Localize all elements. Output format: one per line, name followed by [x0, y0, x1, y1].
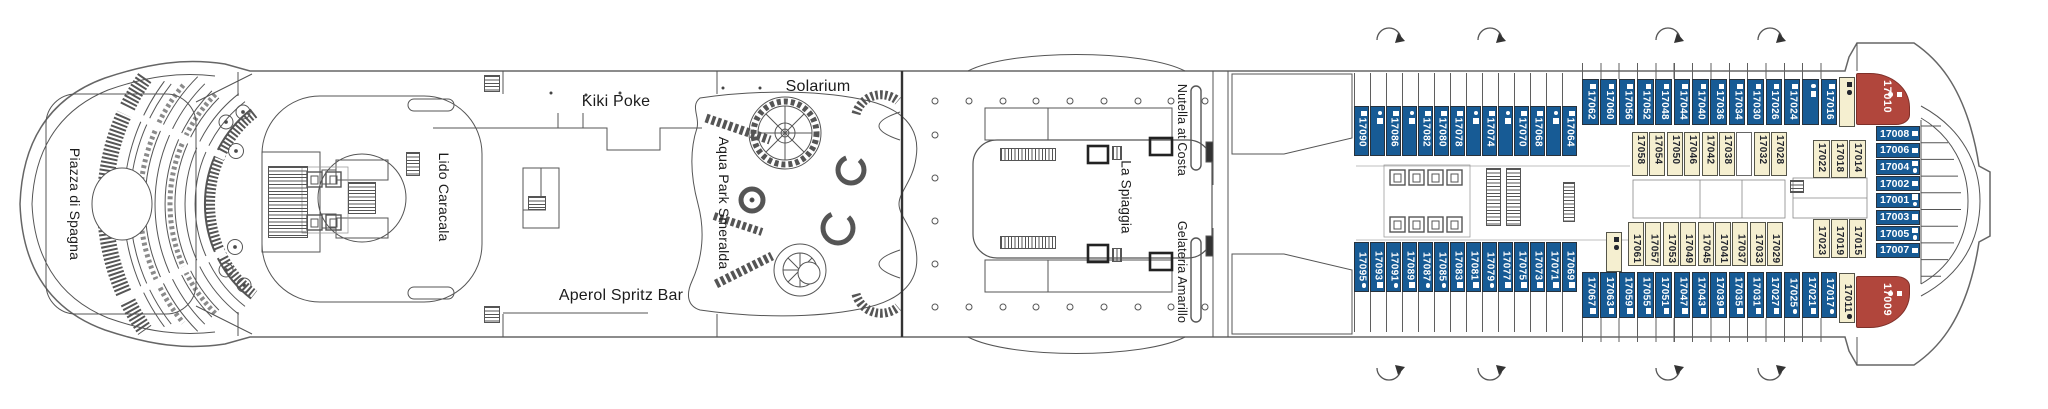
cabin-number: 17005 [1880, 228, 1909, 240]
cabin-number: 17017 [1824, 278, 1835, 307]
stairs-hatch [1112, 146, 1122, 160]
cabin-17072[interactable]: 17072 [1498, 106, 1513, 156]
occupancy-square-icon [1646, 308, 1652, 314]
venue-label-aperol: Aperol Spritz Bar [559, 287, 683, 305]
cabin-17049[interactable]: 17049 [1680, 222, 1696, 266]
deck-column-dot [965, 98, 972, 105]
cabin-number: 17052 [1641, 91, 1652, 120]
occupancy-square-icon [1377, 118, 1383, 124]
deck-column-dot [1100, 98, 1107, 105]
stairs-hatch [1000, 236, 1056, 249]
occupancy-dot-icon [1394, 283, 1399, 288]
balcony-dividers [1582, 318, 1838, 342]
cabin-17062[interactable]: 17062 [1582, 79, 1599, 125]
cabin-number: 17016 [1824, 91, 1835, 120]
cabin-number: 17084 [1402, 109, 1403, 138]
cabin-number: 17045 [1701, 234, 1712, 263]
occupancy-square-icon [1627, 308, 1633, 314]
cabin-number: 17070 [1517, 118, 1528, 147]
occupancy-dot-icon [1888, 291, 1893, 296]
cabin-number: 17073 [1533, 251, 1544, 280]
cabin-number: 17076 [1466, 109, 1467, 138]
occupancy-dot-icon [1426, 283, 1431, 288]
cabin-17074[interactable]: 17074 [1482, 106, 1497, 156]
occupancy-square-icon [1897, 92, 1903, 98]
cabin-17010[interactable]: 17010 [1856, 73, 1910, 125]
cabin-number: 17072 [1498, 109, 1499, 138]
kiki-poke-counter [433, 113, 702, 150]
stairs-hatch [268, 166, 308, 238]
cabin-17030[interactable]: 17030 [1747, 79, 1764, 125]
cabin-17035[interactable]: 17035 [1729, 272, 1746, 318]
stairs-hatch [484, 75, 500, 92]
cabin-number: 17030 [1751, 91, 1762, 120]
cabin-17066[interactable]: 17066 [1546, 106, 1561, 156]
stairs-hatch [484, 306, 500, 323]
occupancy-square-icon [1505, 118, 1511, 124]
cabin-number: 17049 [1683, 234, 1694, 263]
cabin-17056[interactable]: 17056 [1619, 79, 1636, 125]
deck-column-dot [1168, 98, 1175, 105]
mid-bulge-top [968, 55, 1185, 72]
cabin-17032[interactable]: 17032 [1754, 132, 1770, 176]
cabin-17016[interactable]: 17016 [1821, 79, 1838, 125]
deck-column-dot [999, 304, 1006, 311]
occupancy-square-icon [1737, 84, 1743, 90]
cabin-17041[interactable]: 17041 [1715, 222, 1731, 266]
occupancy-square-icon [1737, 308, 1743, 314]
cabin-number: 17021 [1806, 277, 1817, 306]
cabin-number: 17001 [1880, 194, 1909, 206]
cabin-number: 17019 [1834, 226, 1845, 255]
occupancy-dot-icon [1442, 283, 1447, 288]
cabin-number: 17023 [1816, 226, 1827, 255]
occupancy-square-icon [1537, 111, 1543, 117]
cabin-17015[interactable]: 17015 [1849, 219, 1866, 258]
cabin-number: 17088 [1370, 109, 1371, 138]
occupancy-square-icon [1756, 84, 1762, 90]
cabin-number: 17038 [1722, 135, 1733, 164]
cabin-number: 17075 [1517, 251, 1528, 280]
cabin-number: 17046 [1687, 135, 1698, 164]
cabin-number: 17015 [1852, 226, 1863, 255]
cabin-number: 17026 [1769, 91, 1780, 120]
occupancy-square-icon [1521, 111, 1527, 117]
venue-label-lido: Lido Caracala [436, 153, 452, 242]
venue-label-gelateria: Gelateria Amarillo [1175, 221, 1189, 323]
occupancy-dot-icon [1490, 283, 1495, 288]
cabin-number: 17089 [1405, 251, 1416, 280]
occupancy-square-icon [1590, 84, 1596, 90]
cabin-number: 17087 [1421, 252, 1432, 281]
occupancy-dot-icon [1913, 202, 1918, 207]
deck-column-dot [932, 98, 939, 105]
deck-column-dot [1202, 304, 1209, 311]
cabin-17034[interactable]: 17034 [1729, 79, 1746, 125]
occupancy-dot-icon [1830, 309, 1835, 314]
occupancy-square-icon [1441, 111, 1447, 117]
cabin-17093[interactable]: 17093 [1370, 242, 1385, 292]
stairs-hatch [1000, 148, 1056, 161]
deck-column-dot [1202, 98, 1209, 105]
cabin-number: 17079 [1485, 252, 1496, 281]
cabin-number: 17042 [1705, 135, 1716, 164]
cabin-17014[interactable]: 17014 [1849, 140, 1866, 178]
cabin-number: 17074 [1485, 118, 1496, 147]
occupancy-dot-icon [1378, 111, 1383, 116]
cabin-number: 17056 [1622, 91, 1633, 120]
deck-marker-dot [722, 87, 725, 90]
cabin-17029[interactable]: 17029 [1767, 222, 1783, 266]
cabin-17081[interactable]: 17081 [1466, 242, 1481, 292]
cabin-17025[interactable]: 17025 [1784, 272, 1801, 318]
cabin-17007[interactable]: 17007 [1876, 243, 1920, 258]
occupancy-square-icon [1489, 111, 1495, 117]
cabin-17076[interactable]: 17076 [1466, 106, 1481, 156]
stairs-hatch [1486, 168, 1501, 226]
cabin-number: 17041 [1718, 234, 1729, 263]
occupancy-square-icon [1792, 84, 1798, 90]
cabin-number: 17028 [1774, 135, 1785, 164]
cabin-17039[interactable]: 17039 [1710, 272, 1727, 318]
cabin-number: 17068 [1533, 118, 1544, 147]
cabin-number: 17029 [1770, 234, 1781, 263]
cabin-number: 17011 [1842, 284, 1853, 313]
deck-column-dot [999, 98, 1006, 105]
deck-column-dot [1168, 304, 1175, 311]
cabin-number: 17064 [1565, 118, 1576, 147]
cabin-number: 17091 [1389, 252, 1400, 281]
occupancy-square-icon [1409, 118, 1415, 124]
cabin-17083[interactable]: 17083 [1450, 242, 1465, 292]
cabin-17084[interactable]: 17084 [1402, 106, 1417, 156]
occupancy-dot-icon [1888, 92, 1893, 97]
cabin-number: 17093 [1373, 251, 1384, 280]
occupancy-square-icon [1569, 282, 1575, 288]
cabin-17079[interactable]: 17079 [1482, 242, 1497, 292]
occupancy-square-icon [1912, 214, 1918, 220]
deck-column-dot [965, 304, 972, 311]
cabin-number: 17037 [1735, 234, 1746, 263]
cabin-17053[interactable]: 17053 [1663, 222, 1679, 266]
venue-label-aquapark: Aqua Park Smeralda [716, 137, 732, 270]
cabin-number: 17006 [1880, 144, 1909, 156]
cabin-number: 17036 [1714, 91, 1725, 120]
deck-marker-dot [619, 92, 622, 95]
cabin-number: 17067 [1586, 277, 1597, 306]
occupancy-square-icon [1457, 111, 1463, 117]
venue-label-spiaggia: La Spiaggia [1119, 160, 1134, 234]
cabin-17021[interactable]: 17021 [1802, 272, 1819, 318]
cabin-17026[interactable]: 17026 [1766, 79, 1783, 125]
cabin-number: 17008 [1880, 128, 1909, 140]
forward-elevator-bank [302, 167, 348, 233]
cabin-number: 17060 [1604, 91, 1615, 120]
occupancy-square-icon [1664, 308, 1670, 314]
occupancy-square-icon [1847, 82, 1853, 88]
cabin-17011[interactable]: 17011 [1839, 273, 1855, 323]
stairs-hatch [1563, 182, 1575, 222]
occupancy-square-icon [1774, 84, 1780, 90]
stairs-hatch [348, 182, 376, 214]
cabin-17031[interactable]: 17031 [1747, 272, 1764, 318]
occupancy-dot-icon [1614, 245, 1619, 250]
cabin-17012[interactable]: 17012 [1839, 77, 1855, 127]
cabin-17082[interactable]: 17082 [1418, 106, 1433, 156]
cabin-17044[interactable]: 17044 [1674, 79, 1691, 125]
cabin-number: 17051 [1659, 277, 1670, 306]
cabin-number: 17043 [1696, 277, 1707, 306]
occupancy-square-icon [1393, 111, 1399, 117]
occupancy-square-icon [1912, 161, 1918, 167]
occupancy-square-icon [1701, 84, 1707, 90]
cabin-17020[interactable]: 17020 [1802, 79, 1819, 125]
cabin-17018[interactable]: 17018 [1831, 140, 1848, 178]
cabin-17008[interactable]: 17008 [1876, 126, 1920, 141]
cabin-number: 17061 [1631, 234, 1642, 263]
cabin-17080[interactable]: 17080 [1434, 106, 1449, 156]
service-room-bottom [1232, 254, 1352, 334]
cabin-17028[interactable]: 17028 [1771, 132, 1787, 176]
cabin-17046[interactable]: 17046 [1684, 132, 1700, 176]
cabin-17001[interactable]: 17001 [1876, 193, 1920, 208]
cabin-17019[interactable]: 17019 [1831, 219, 1848, 258]
occupancy-square-icon [1811, 91, 1817, 97]
occupancy-square-icon [1614, 237, 1620, 243]
cabin-17088[interactable]: 17088 [1370, 106, 1385, 156]
cabin-17047[interactable]: 17047 [1674, 272, 1691, 318]
cabin-17070[interactable]: 17070 [1514, 106, 1529, 156]
cabin-number: 17080 [1437, 118, 1448, 147]
cabin-number: 17086 [1389, 118, 1400, 147]
cabin-17042[interactable]: 17042 [1702, 132, 1718, 176]
cabin-number: 17044 [1677, 91, 1688, 120]
cabin-17038[interactable]: 17038 [1719, 132, 1735, 176]
cabin-17063[interactable]: 17063 [1600, 272, 1617, 318]
occupancy-square-icon [1627, 84, 1633, 90]
cabin-17005[interactable]: 17005 [1876, 226, 1920, 241]
occupancy-square-icon [1609, 84, 1615, 90]
cabin-17023[interactable]: 17023 [1813, 219, 1830, 258]
occupancy-square-icon [1811, 308, 1817, 314]
cabin-17058[interactable]: 17058 [1632, 132, 1648, 176]
cabin-17087[interactable]: 17087 [1418, 242, 1433, 292]
stairs-hatch [406, 152, 420, 176]
occupancy-square-icon [1425, 111, 1431, 117]
occupancy-square-icon [1774, 308, 1780, 314]
cabin-number: 17069 [1565, 251, 1576, 280]
cabin-number: 17053 [1666, 234, 1677, 263]
cabin-number: 17078 [1453, 118, 1464, 147]
cabin-17078[interactable]: 17078 [1450, 106, 1465, 156]
venue-label-nutella: Nutella at Costa [1175, 84, 1189, 176]
cabin-number: 17039 [1714, 277, 1725, 306]
occupancy-square-icon [1590, 308, 1596, 314]
occupancy-square-icon [1897, 291, 1903, 297]
occupancy-square-icon [1912, 181, 1918, 187]
gelateria-counter [1191, 238, 1201, 322]
cabin-number: 17063 [1604, 277, 1615, 306]
deck-column-dot [1134, 98, 1141, 105]
venue-label-kiki: Kiki Poke [582, 93, 651, 111]
stairs-hatch [1790, 180, 1804, 193]
occupancy-square-icon [1682, 84, 1688, 90]
cabin-17069[interactable]: 17069 [1562, 242, 1577, 292]
cabin-17095[interactable]: 17095 [1354, 242, 1369, 292]
cabin-17006[interactable]: 17006 [1876, 143, 1920, 158]
cabin-number: 17047 [1677, 277, 1688, 306]
occupancy-square-icon [1719, 308, 1725, 314]
cabin-number: 17022 [1816, 143, 1827, 172]
cabin-17086[interactable]: 17086 [1386, 106, 1401, 156]
occupancy-square-icon [1609, 308, 1615, 314]
cabin-17089[interactable]: 17089 [1402, 242, 1417, 292]
amphitheatre-seating [92, 77, 254, 332]
deck-column-dot [1033, 304, 1040, 311]
cabin-number: 17085 [1437, 252, 1448, 281]
cabin-17050[interactable]: 17050 [1667, 132, 1683, 176]
cabin-17052[interactable]: 17052 [1637, 79, 1654, 125]
occupancy-square-icon [1409, 282, 1415, 288]
cabin-number: 17018 [1834, 143, 1845, 172]
cabin-number: 17090 [1357, 118, 1368, 147]
cabin-17004[interactable]: 17004 [1876, 159, 1920, 174]
cabin-17002[interactable]: 17002 [1876, 176, 1920, 191]
stairs-hatch [1112, 248, 1122, 262]
cabin-number: 17032 [1757, 135, 1768, 164]
cabin-number: 17034 [1732, 91, 1743, 120]
cabin-17017[interactable]: 17017 [1821, 272, 1838, 318]
occupancy-square-icon [1912, 148, 1918, 154]
occupancy-square-icon [1473, 118, 1479, 124]
cabin-number: 17058 [1635, 135, 1646, 164]
cabin-17033[interactable]: 17033 [1750, 222, 1766, 266]
cabin-number: 17071 [1549, 251, 1560, 280]
deck-marker-dot [759, 87, 762, 90]
occupancy-square-icon [1912, 194, 1918, 200]
cabin-17045[interactable]: 17045 [1698, 222, 1714, 266]
cabin-17059[interactable]: 17059 [1619, 272, 1636, 318]
deck-column-dot [1033, 98, 1040, 105]
aft-elevator-bank [1384, 165, 1470, 237]
cabin-17040[interactable]: 17040 [1692, 79, 1709, 125]
cabin-number: 17031 [1751, 277, 1762, 306]
cabin-17027[interactable]: 17027 [1766, 272, 1783, 318]
cabin-17043[interactable]: 17043 [1692, 272, 1709, 318]
occupancy-dot-icon [1811, 84, 1816, 89]
cabin-number: 17014 [1852, 143, 1863, 172]
occupancy-square-icon [1553, 282, 1559, 288]
occupancy-dot-icon [1847, 314, 1852, 319]
occupancy-square-icon [1505, 282, 1511, 288]
stairs-hatch [1506, 168, 1521, 226]
cabin-number: 17025 [1787, 278, 1798, 307]
deck-column-dot [1067, 304, 1074, 311]
mid-bulge-bottom [968, 337, 1185, 354]
cabin-number: 17003 [1880, 211, 1909, 223]
cabin-number: 17009 [1861, 283, 1910, 316]
cabin-number: 17048 [1659, 91, 1670, 120]
cabin-number: 17027 [1769, 277, 1780, 306]
service-room-top [1232, 74, 1352, 154]
occupancy-square-icon [1457, 282, 1463, 288]
occupancy-square-icon [1537, 282, 1543, 288]
deck-column-dot [1100, 304, 1107, 311]
occupancy-square-icon [1569, 111, 1575, 117]
cabin-number: 17040 [1696, 91, 1707, 120]
cabin-17085[interactable]: 17085 [1434, 242, 1449, 292]
occupancy-dot-icon [1913, 168, 1918, 173]
balcony-dividers [1354, 292, 1578, 332]
cabin-number: 17007 [1880, 244, 1909, 256]
cabin-17068[interactable]: 17068 [1530, 106, 1545, 156]
cabin-17061[interactable]: 17061 [1628, 222, 1644, 266]
occupancy-square-icon [1829, 84, 1835, 90]
cabin-number: 17083 [1453, 251, 1464, 280]
occupancy-square-icon [1912, 131, 1918, 137]
cabin-17067[interactable]: 17067 [1582, 272, 1599, 318]
cabin-17090[interactable]: 17090 [1354, 106, 1369, 156]
cabin-17075[interactable]: 17075 [1514, 242, 1529, 292]
cabin-17057[interactable]: 17057 [1645, 222, 1661, 266]
cabin-number: 17066 [1546, 109, 1547, 138]
deck-column-dot [932, 304, 939, 311]
cabin-17060[interactable]: 17060 [1600, 79, 1617, 125]
cabin-number: 17055 [1641, 277, 1652, 306]
cabin-17051[interactable]: 17051 [1655, 272, 1672, 318]
cabin-number: 17024 [1787, 91, 1798, 120]
occupancy-square-icon [1361, 111, 1367, 117]
deck-column-dot [1067, 98, 1074, 105]
cabin-17055[interactable]: 17055 [1637, 272, 1654, 318]
occupancy-dot-icon [1506, 111, 1511, 116]
occupancy-dot-icon [1913, 235, 1918, 240]
occupancy-square-icon [1701, 308, 1707, 314]
cabin-number: 17077 [1501, 251, 1512, 280]
cabin-17003[interactable]: 17003 [1876, 210, 1920, 225]
deck-marker-dot [550, 92, 553, 95]
cabin-17065[interactable]: 17065 [1606, 232, 1622, 272]
cabin-number: 17095 [1357, 252, 1368, 281]
cabin-17064[interactable]: 17064 [1562, 106, 1577, 156]
cabin-blank [1736, 132, 1752, 176]
deck-plan: Piazza di SpagnaLido CaracalaKiki PokeSo… [0, 0, 2048, 409]
cabin-17048[interactable]: 17048 [1655, 79, 1672, 125]
deck-column-dot [932, 218, 939, 225]
cabin-number: 17062 [1586, 91, 1597, 120]
occupancy-square-icon [1521, 282, 1527, 288]
cabin-17054[interactable]: 17054 [1649, 132, 1665, 176]
balcony-dividers [1582, 63, 1838, 79]
cabin-17091[interactable]: 17091 [1386, 242, 1401, 292]
occupancy-square-icon [1473, 282, 1479, 288]
cabin-17077[interactable]: 17077 [1498, 242, 1513, 292]
deck-marker-dot [585, 94, 588, 97]
cabin-17071[interactable]: 17071 [1546, 242, 1561, 292]
occupancy-square-icon [1756, 308, 1762, 314]
occupancy-square-icon [1912, 228, 1918, 234]
cabin-number: 17002 [1880, 178, 1909, 190]
occupancy-dot-icon [1554, 111, 1559, 116]
cabin-17022[interactable]: 17022 [1813, 140, 1830, 178]
cabin-number: 17057 [1648, 234, 1659, 263]
cabin-17073[interactable]: 17073 [1530, 242, 1545, 292]
occupancy-square-icon [1646, 84, 1652, 90]
deck-column-dot [932, 175, 939, 182]
cabin-17037[interactable]: 17037 [1732, 222, 1748, 266]
cabin-17024[interactable]: 17024 [1784, 79, 1801, 125]
cabin-17036[interactable]: 17036 [1710, 79, 1727, 125]
